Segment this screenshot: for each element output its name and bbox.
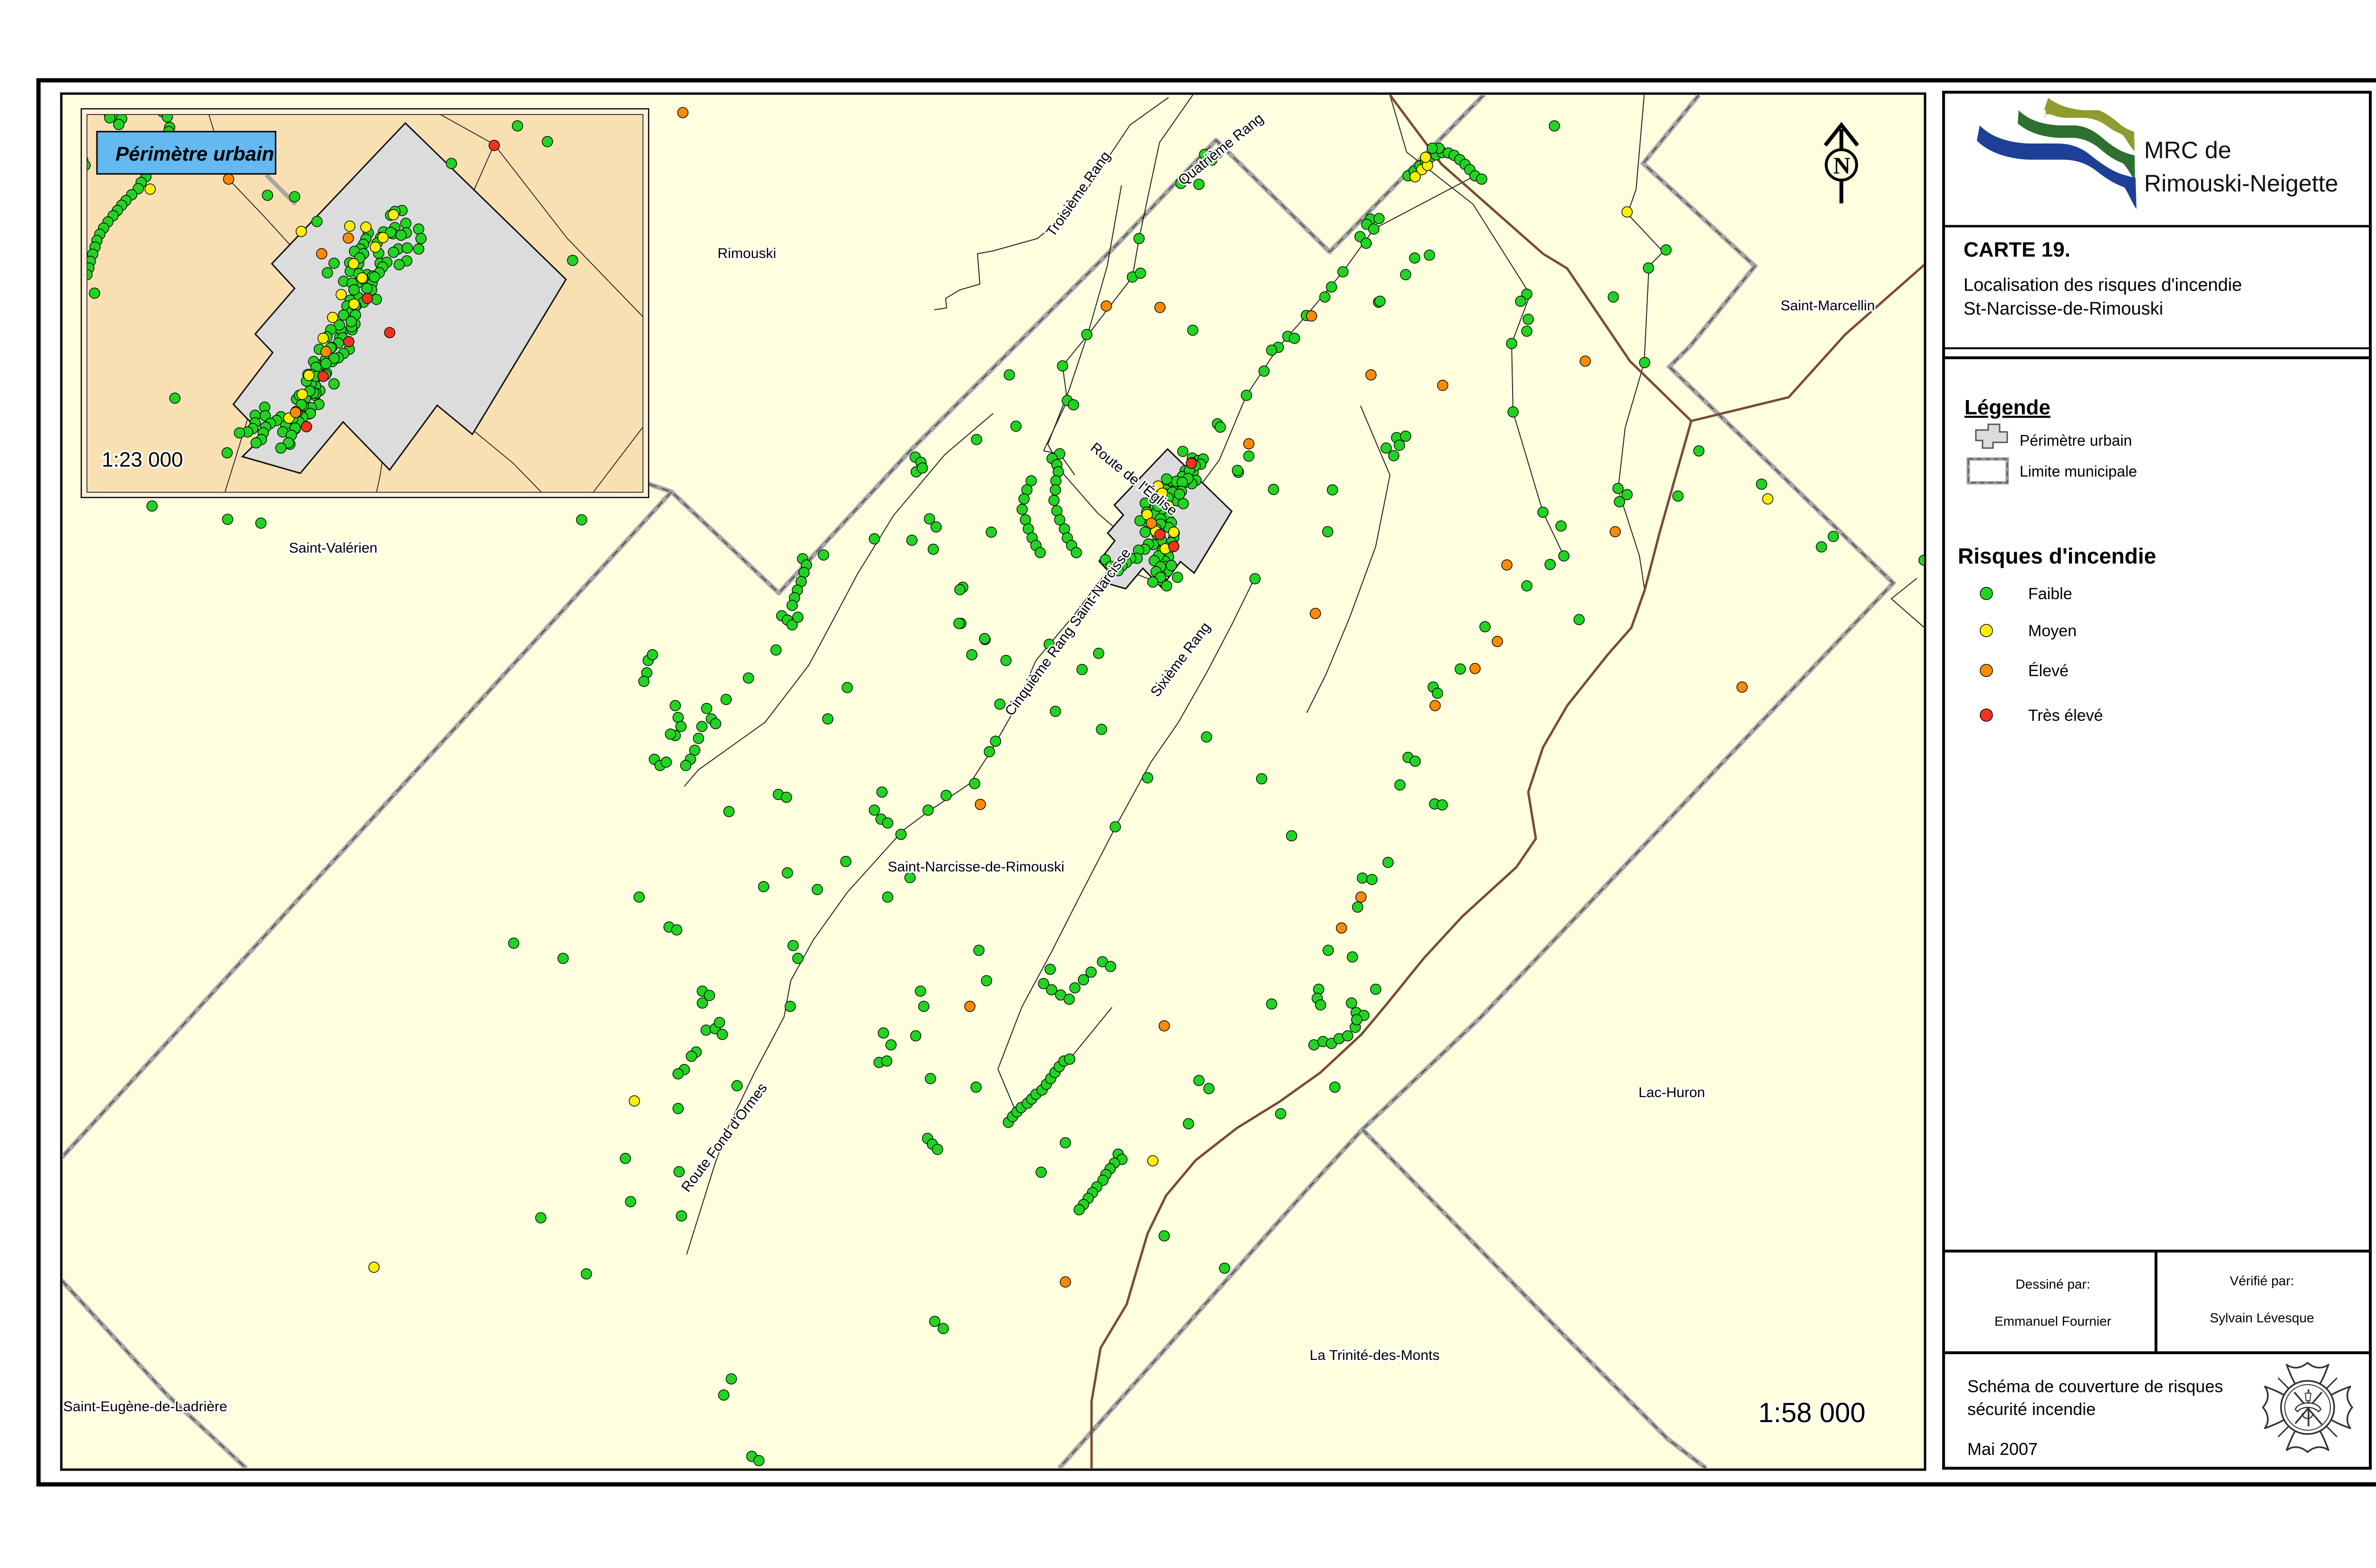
svg-text:Très élevé: Très élevé	[2028, 707, 2103, 725]
svg-text:Risques d'incendie: Risques d'incendie	[1958, 544, 2156, 568]
svg-text:1:58 000: 1:58 000	[1758, 1397, 1866, 1428]
svg-text:N: N	[1833, 152, 1850, 179]
svg-text:Saint-Marcellin: Saint-Marcellin	[1781, 298, 1875, 314]
svg-text:Saint-Eugène-de-Ladrière: Saint-Eugène-de-Ladrière	[63, 1399, 227, 1415]
svg-text:Lac-Huron: Lac-Huron	[1638, 1085, 1705, 1100]
svg-text:Élevé: Élevé	[2028, 662, 2069, 680]
svg-text:Moyen: Moyen	[2028, 622, 2077, 640]
svg-text:1:23 000: 1:23 000	[102, 448, 183, 471]
svg-text:Rimouski: Rimouski	[718, 246, 776, 261]
svg-text:St-Narcisse-de-Rimouski: St-Narcisse-de-Rimouski	[1964, 299, 2163, 319]
svg-text:Limite municipale: Limite municipale	[2020, 463, 2137, 480]
svg-text:Localisation des risques d'inc: Localisation des risques d'incendie	[1964, 275, 2242, 295]
svg-text:Périmètre urbain: Périmètre urbain	[2020, 432, 2132, 449]
svg-text:Faible: Faible	[2028, 585, 2072, 603]
svg-text:sécurité incendie: sécurité incendie	[1967, 1399, 2096, 1419]
svg-text:Périmètre urbain: Périmètre urbain	[115, 143, 274, 165]
svg-text:Saint-Valérien: Saint-Valérien	[289, 540, 377, 556]
svg-text:Mai 2007: Mai 2007	[1967, 1439, 2038, 1459]
svg-text:Vérifié par:: Vérifié par:	[2230, 1273, 2294, 1288]
svg-text:Saint-Narcisse-de-Rimouski: Saint-Narcisse-de-Rimouski	[888, 859, 1064, 875]
svg-text:Schéma de couverture de risque: Schéma de couverture de risques	[1967, 1377, 2223, 1396]
svg-text:MRC de: MRC de	[2144, 137, 2231, 163]
svg-text:Dessiné par:: Dessiné par:	[2015, 1277, 2090, 1291]
svg-text:Légende: Légende	[1964, 396, 2050, 419]
svg-text:Rimouski-Neigette: Rimouski-Neigette	[2144, 170, 2338, 197]
svg-text:CARTE 19.: CARTE 19.	[1964, 238, 2070, 261]
svg-text:La Trinité-des-Monts: La Trinité-des-Monts	[1310, 1348, 1439, 1363]
svg-text:Sylvain Lévesque: Sylvain Lévesque	[2210, 1310, 2314, 1325]
svg-text:Emmanuel Fournier: Emmanuel Fournier	[1994, 1314, 2111, 1329]
